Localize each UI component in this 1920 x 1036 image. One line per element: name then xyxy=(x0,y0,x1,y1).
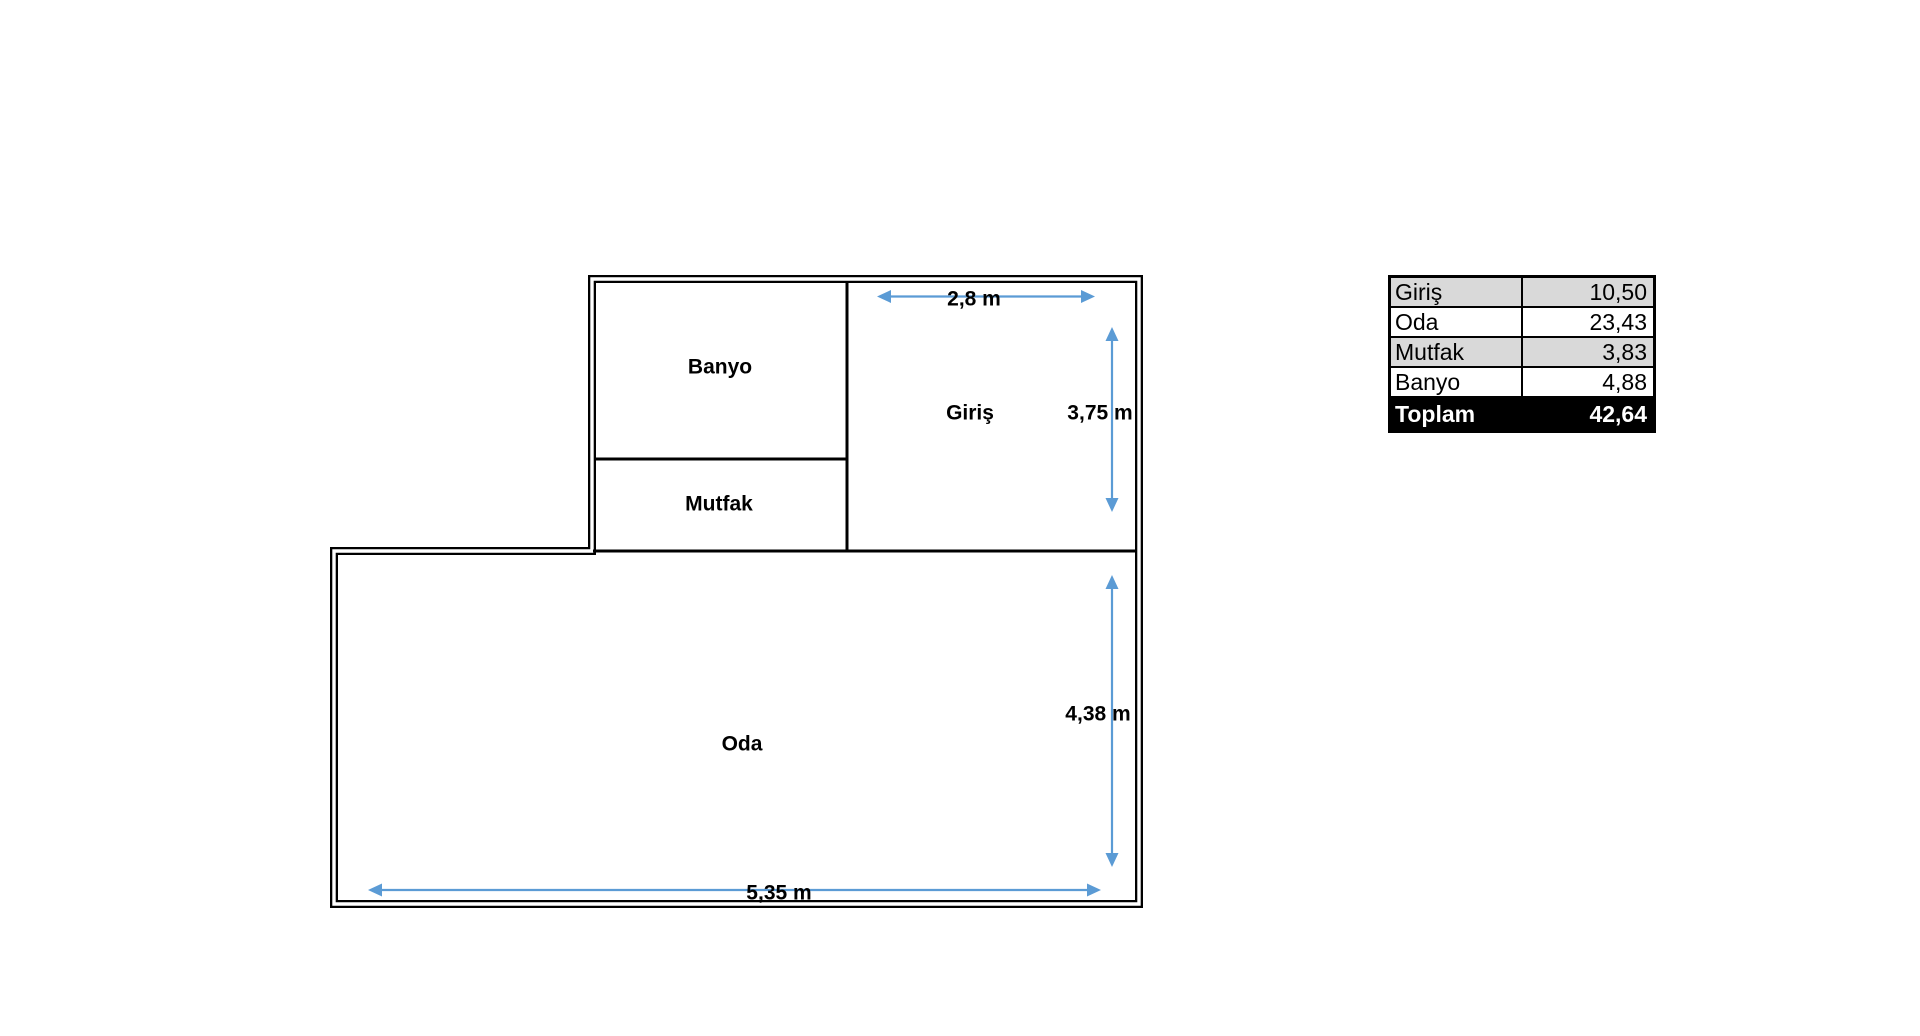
room-name-cell: Mutfak xyxy=(1390,337,1523,367)
dimension-label-giris-width: 2,8 m xyxy=(947,289,1001,310)
page-canvas: Banyo Mutfak Giriş Oda 2,8 m 3,75 m 4,38… xyxy=(0,0,1920,1036)
area-value-cell: 23,43 xyxy=(1522,307,1655,337)
room-label-giris: Giriş xyxy=(946,403,994,424)
room-label-mutfak: Mutfak xyxy=(685,494,753,515)
dimension-label-giris-height: 3,75 m xyxy=(1067,403,1132,424)
room-name-cell: Banyo xyxy=(1390,367,1523,397)
dimension-label-oda-height: 4,38 m xyxy=(1065,704,1130,725)
room-label-oda: Oda xyxy=(722,734,763,755)
table-row-toplam: Toplam 42,64 xyxy=(1390,397,1655,432)
table-row-mutfak: Mutfak 3,83 xyxy=(1390,337,1655,367)
area-table: Giriş 10,50 Oda 23,43 Mutfak 3,83 Banyo … xyxy=(1388,275,1656,433)
table-row-giris: Giriş 10,50 xyxy=(1390,277,1655,308)
table-row-oda: Oda 23,43 xyxy=(1390,307,1655,337)
room-label-banyo: Banyo xyxy=(688,357,752,378)
area-value-cell: 10,50 xyxy=(1522,277,1655,308)
total-value-cell: 42,64 xyxy=(1522,397,1655,432)
table-row-banyo: Banyo 4,88 xyxy=(1390,367,1655,397)
total-label-cell: Toplam xyxy=(1390,397,1523,432)
room-name-cell: Oda xyxy=(1390,307,1523,337)
area-value-cell: 3,83 xyxy=(1522,337,1655,367)
room-name-cell: Giriş xyxy=(1390,277,1523,308)
floor-plan-drawing xyxy=(0,0,1920,1036)
area-value-cell: 4,88 xyxy=(1522,367,1655,397)
dimension-label-oda-width: 5,35 m xyxy=(746,883,811,904)
